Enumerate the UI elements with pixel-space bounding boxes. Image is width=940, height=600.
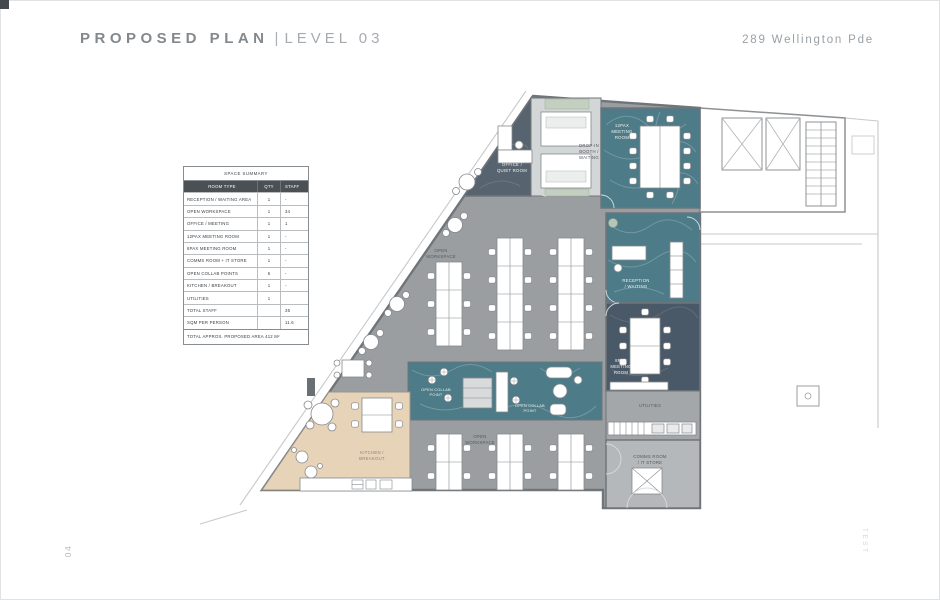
svg-text:BOOTH /: BOOTH / [579, 149, 599, 154]
chair [453, 188, 460, 195]
chair [475, 169, 482, 176]
round-table [305, 466, 317, 478]
chair [574, 376, 582, 384]
external-fixture [797, 386, 819, 406]
label-utilities: UTILITIES [639, 403, 661, 408]
chair [304, 401, 312, 409]
plan-sheet: PROPOSED PLAN|LEVEL 03 289 Wellington Pd… [0, 0, 940, 600]
svg-text:POINT: POINT [430, 392, 443, 397]
desk-banks-lower [427, 434, 592, 490]
chair [515, 141, 523, 149]
chair [318, 464, 323, 469]
stool [428, 376, 436, 384]
label-open-workspace-lower: OPEN [473, 434, 486, 439]
label-reception: RECEPTION [622, 278, 649, 283]
stool [510, 377, 518, 385]
stair [806, 122, 836, 206]
svg-text:WORKSPACE: WORKSPACE [465, 440, 495, 445]
svg-text:/ IT STORE: / IT STORE [638, 460, 663, 465]
collab-table [463, 378, 492, 408]
page-number: 04 [63, 545, 73, 557]
label-office: OFFICE / [502, 162, 523, 167]
printer [682, 424, 692, 433]
floor-plan-svg: OFFICE / QUIET ROOM DROP-IN BOOTH / WAIT… [0, 0, 940, 600]
room-reception-waiting [606, 213, 700, 303]
chair [443, 230, 450, 237]
chair [334, 372, 340, 378]
label-12pax-meeting: 12PAX [615, 123, 629, 128]
side-watermark: TEST [861, 528, 868, 555]
svg-text:MEETING: MEETING [610, 364, 632, 369]
chair [292, 448, 297, 453]
chair [377, 330, 384, 337]
chair [385, 310, 392, 317]
appliance [380, 480, 392, 489]
svg-text:WORKSPACE: WORKSPACE [426, 254, 456, 259]
label-comms-room: COMMS ROOM [633, 454, 667, 459]
svg-text:WAITING: WAITING [579, 155, 599, 160]
round-table [390, 297, 405, 312]
label-open-workspace-upper: OPEN [434, 248, 447, 253]
room-comms-it-store [606, 440, 700, 508]
printer [667, 424, 679, 433]
chair [614, 264, 622, 272]
chair [366, 372, 372, 378]
lift-shaft [766, 118, 800, 170]
round-table [296, 451, 308, 463]
svg-text:POINT: POINT [524, 408, 537, 413]
chair [461, 213, 468, 220]
round-table [459, 174, 475, 190]
chair [359, 348, 366, 355]
phone-booth [496, 372, 508, 412]
desk [498, 126, 512, 150]
zone-kitchen-breakout [262, 378, 412, 491]
stool [440, 368, 448, 376]
zone-utilities [606, 391, 700, 440]
planter [545, 189, 589, 196]
round-table [364, 335, 379, 350]
svg-text:BREAKOUT: BREAKOUT [359, 456, 385, 461]
chair [331, 399, 339, 407]
armchair [550, 404, 566, 415]
chair [366, 360, 372, 366]
reception-desk [612, 246, 646, 260]
chair [306, 421, 314, 429]
stool [444, 394, 452, 402]
plant [609, 219, 618, 228]
building-core [700, 108, 845, 212]
chair [403, 292, 410, 299]
table [342, 360, 364, 377]
room-8pax-meeting [606, 303, 700, 391]
appliance [366, 480, 376, 489]
svg-text:/ WAITING: / WAITING [625, 284, 648, 289]
round-table [553, 384, 567, 398]
label-kitchen: KITCHEN / [360, 450, 384, 455]
label-8pax-meeting: 8PAX [615, 358, 627, 363]
wall-pier [307, 378, 315, 396]
chair [328, 423, 336, 431]
svg-text:MEETING: MEETING [611, 129, 633, 134]
printer [652, 424, 664, 433]
svg-text:QUIET ROOM: QUIET ROOM [497, 168, 527, 173]
round-table [448, 218, 463, 233]
planter [545, 99, 589, 109]
svg-text:ROOM: ROOM [614, 370, 629, 375]
credenza [610, 382, 668, 390]
label-drop-in-booth: DROP-IN [579, 143, 599, 148]
lift-shaft [722, 118, 762, 170]
sofa [546, 367, 572, 378]
chair [334, 360, 340, 366]
svg-text:ROOM: ROOM [615, 135, 630, 140]
round-table [311, 403, 333, 425]
